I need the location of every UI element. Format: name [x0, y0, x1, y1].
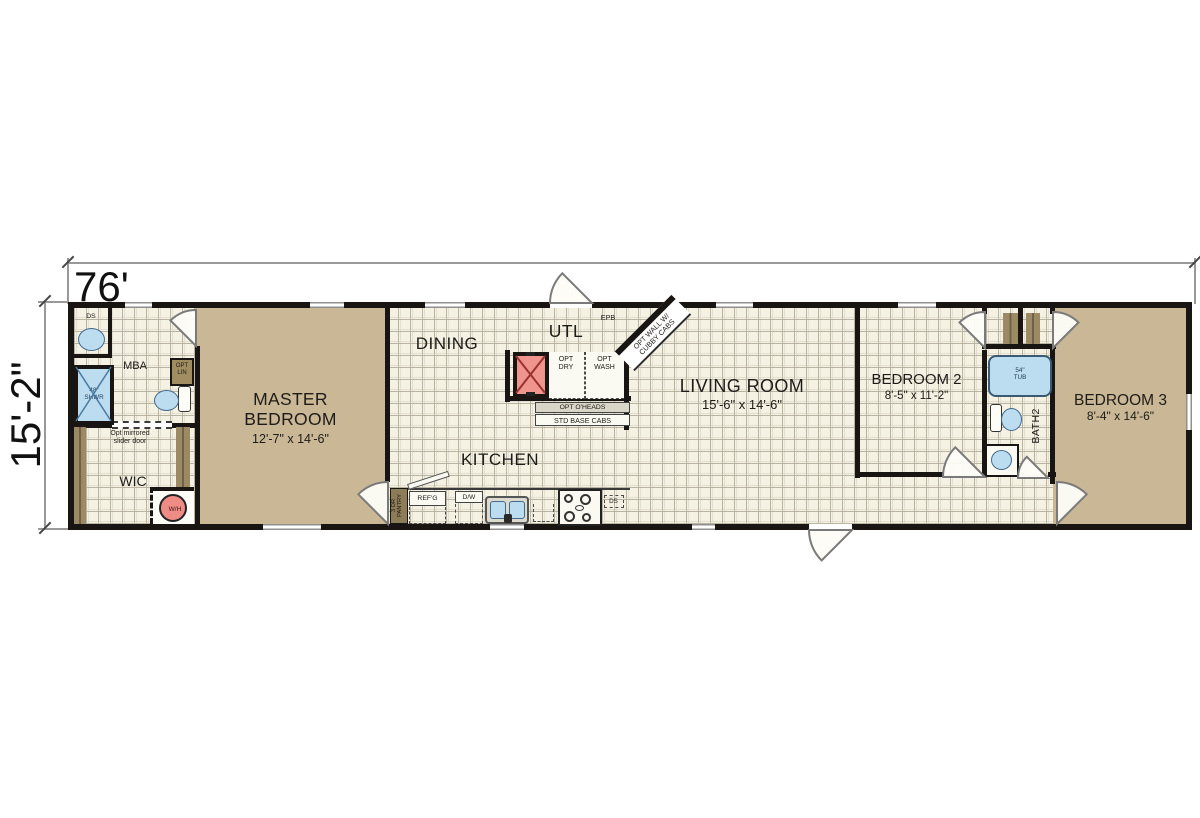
- burner-3: [564, 511, 575, 522]
- bath2-label: BATH2: [1031, 393, 1043, 459]
- burner-2: [580, 494, 591, 505]
- front-door-gap: [550, 302, 592, 308]
- water-heater-box: W/H: [150, 487, 194, 524]
- top-dimension-line: [68, 262, 1196, 264]
- bath2-vanity: [985, 444, 1019, 477]
- kitchen-sink: [485, 496, 529, 524]
- wic-shelf-left: [74, 427, 86, 524]
- wall-utl-left-stub: [505, 350, 510, 402]
- water-heater-label: W/H: [161, 506, 189, 513]
- wall-master-right: [385, 308, 390, 482]
- window-bedroom2: [898, 302, 936, 308]
- door-front-exterior: [550, 273, 592, 303]
- burner-1: [564, 494, 573, 503]
- furnace: [513, 352, 549, 398]
- tub: 54" TUB: [988, 355, 1052, 397]
- std-base-cabs-label: STD BASE CABS: [536, 417, 629, 425]
- flip-counter: [407, 471, 450, 490]
- fridge-dash: [409, 507, 446, 524]
- living-room-size: 15'-6" x 14'-6": [667, 398, 817, 413]
- bedroom3-name: BEDROOM 3: [1048, 392, 1193, 409]
- mba-label: MBA: [112, 360, 158, 372]
- wall-master-left: [195, 346, 200, 524]
- bedroom3-labels: BEDROOM 3 8'-4" x 14'-6": [1048, 392, 1193, 424]
- std-base-cabs-bar: STD BASE CABS: [535, 414, 630, 426]
- opt-dryer-label: OPT DRY: [549, 356, 583, 372]
- tub-label: 54" TUB: [990, 367, 1050, 381]
- burner-4: [582, 513, 591, 522]
- wall-closet-bottom: [982, 344, 1056, 349]
- pantry-label: 3 DR PANTRY: [391, 489, 406, 522]
- epb-label: EPB: [588, 314, 628, 322]
- kitchen-label: KITCHEN: [440, 450, 560, 469]
- mba-toilet-tank: [178, 386, 191, 412]
- base-cab-dash: [533, 504, 554, 522]
- slider-door-dashes: [112, 421, 172, 429]
- opt-overheads-bar: OPT O'HEADS: [535, 402, 630, 413]
- floor-plan: DS 48" SHWR MBA OPT LIN Opt mirrored sli…: [68, 302, 1192, 530]
- top-dim-ext-left: [67, 258, 69, 304]
- mba-sink: [78, 328, 105, 351]
- dw-dash: [455, 504, 483, 524]
- wall-bath2-left-stub: [982, 308, 987, 314]
- fridge: REF'G: [409, 491, 446, 506]
- wall-closet-divider: [1018, 308, 1023, 346]
- fridge-label: REF'G: [410, 495, 445, 503]
- wall-ds-closet-bottom: [74, 354, 112, 358]
- opt-overheads-label: OPT O'HEADS: [536, 404, 629, 412]
- dining-label: DINING: [397, 334, 497, 353]
- master-bedroom-size: 12'-7" x 14'-6": [213, 432, 368, 446]
- wall-ds-closet-right: [108, 308, 112, 358]
- opt-wall-band: OPT WALL W/ CUBBY CABS: [615, 295, 691, 371]
- sink-faucet: [504, 514, 512, 523]
- wic-shelf-right: [176, 427, 190, 487]
- bath2-sink: [991, 450, 1012, 470]
- range-center: [575, 505, 584, 511]
- ds-label-kitchen: DS: [605, 498, 622, 505]
- floor-plan-page: 76' 15'-2": [0, 0, 1200, 818]
- window-kitchen-sink: [490, 524, 524, 530]
- window-living-bottom: [692, 524, 715, 530]
- top-dim-ext-right: [1194, 258, 1196, 304]
- master-bedroom-labels: MASTER BEDROOM 12'-7" x 14'-6": [213, 390, 368, 446]
- living-room-name: LIVING ROOM: [667, 376, 817, 396]
- dishwasher: D/W: [455, 491, 483, 503]
- rear-door-gap: [809, 524, 852, 530]
- shower: 48" SHWR: [74, 365, 114, 425]
- window-master-top: [310, 302, 344, 308]
- wall-bedroom2-bottom: [855, 472, 943, 477]
- bedroom3-size: 8'-4" x 14'-6": [1048, 410, 1193, 423]
- bedroom2-size: 8'-5" x 11'-2": [844, 390, 989, 403]
- door-rear-exterior: [809, 530, 852, 560]
- opt-washer-label: OPT WASH: [586, 356, 623, 372]
- utl-label: UTL: [538, 322, 594, 342]
- height-dimension-label-box: 15'-2": [2, 330, 46, 500]
- mba-toilet-bowl: [154, 390, 179, 411]
- master-bedroom-name: MASTER BEDROOM: [213, 390, 368, 429]
- window-dining: [425, 302, 465, 308]
- window-master-bottom: [263, 524, 321, 530]
- ds-box-kitchen: DS: [604, 495, 624, 508]
- water-heater: W/H: [159, 494, 187, 522]
- opt-wall-label: OPT WALL W/ CUBBY CABS: [620, 300, 688, 368]
- window-living-top: [716, 302, 753, 308]
- ds-label-mba: DS: [76, 313, 106, 321]
- shower-label: 48" SHWR: [78, 387, 110, 401]
- bedroom2-labels: BEDROOM 2 8'-5" x 11'-2": [844, 372, 989, 403]
- opt-washer-box: OPT WASH: [585, 352, 624, 399]
- linen-cabinet: OPT LIN: [170, 358, 194, 386]
- window-mba: [125, 302, 152, 308]
- wall-bedroom3-left-stub: [1050, 308, 1055, 314]
- closet-shelf-right: [1026, 313, 1040, 344]
- dishwasher-label: D/W: [456, 494, 482, 501]
- height-dimension-label: 15'-2": [2, 330, 46, 500]
- slider-door-note: Opt mirrored slider door: [86, 430, 174, 446]
- living-room-labels: LIVING ROOM 15'-6" x 14'-6": [667, 376, 817, 413]
- pantry: 3 DR PANTRY: [390, 488, 408, 524]
- bedroom2-name: BEDROOM 2: [844, 372, 989, 389]
- opt-dryer-box: OPT DRY: [549, 352, 585, 399]
- range: [558, 489, 602, 526]
- closet-shelf-left: [1003, 313, 1018, 344]
- linen-label: OPT LIN: [172, 363, 192, 376]
- bath2-toilet-bowl: [1001, 408, 1022, 431]
